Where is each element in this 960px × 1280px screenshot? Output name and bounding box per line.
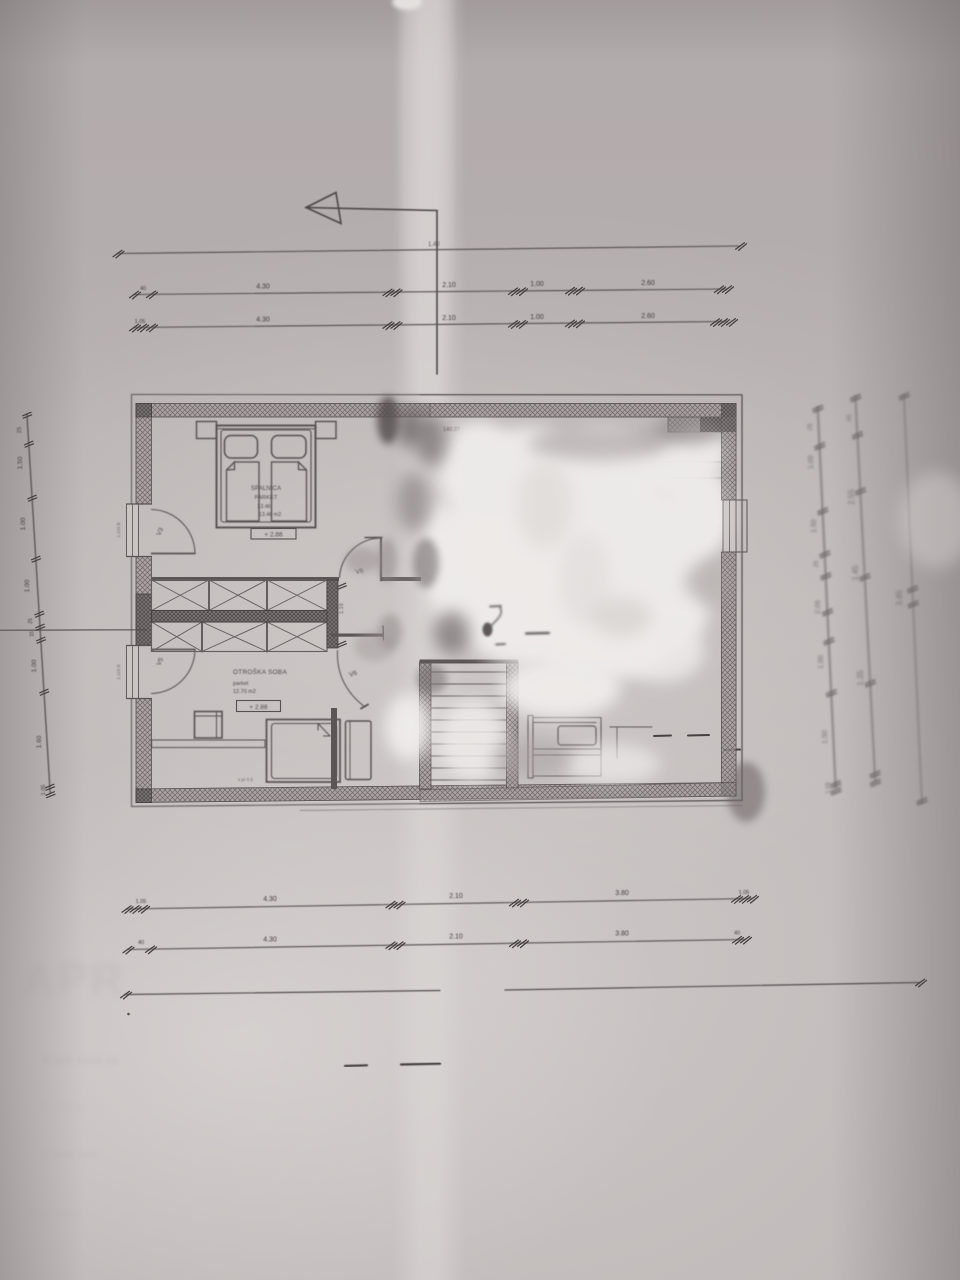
svg-text:13.46 m2: 13.46 m2 (259, 512, 281, 518)
svg-text:4.30: 4.30 (256, 317, 270, 324)
svg-text:2.10: 2.10 (449, 893, 463, 900)
svg-text:1.115 B: 1.115 B (116, 664, 121, 679)
svg-text:1.00: 1.00 (808, 455, 815, 469)
svg-text:APR: APR (22, 953, 125, 1005)
svg-text:2.60: 2.60 (641, 280, 655, 287)
svg-text:1.05: 1.05 (826, 782, 832, 794)
svg-text:V3: V3 (155, 526, 165, 537)
svg-text:1.05: 1.05 (136, 899, 147, 905)
svg-text:1.00: 1.00 (20, 517, 27, 530)
svg-text:1.45: 1.45 (851, 565, 860, 581)
svg-text:+ 2.86: + 2.86 (249, 704, 268, 711)
svg-text:13.46: 13.46 (257, 504, 271, 510)
svg-text:1.50: 1.50 (811, 519, 818, 533)
svg-text:PARKET: PARKET (255, 495, 278, 501)
svg-text:1.40: 1.40 (428, 242, 440, 248)
svg-text:3.80: 3.80 (615, 890, 629, 897)
svg-text:25: 25 (28, 618, 34, 624)
svg-text:V6: V6 (348, 669, 358, 678)
svg-text:15: 15 (30, 631, 36, 637)
svg-text:s pr 0.5: s pr 0.5 (238, 777, 254, 782)
svg-text:40: 40 (140, 286, 146, 292)
svg-text:2.10: 2.10 (442, 315, 456, 322)
svg-text:4 xxx xxxx xx: 4 xxx xxxx xx (42, 1052, 119, 1067)
svg-text:3.85: 3.85 (895, 590, 904, 606)
svg-text:x xxx xxxx: x xxx xxxx (28, 1207, 79, 1219)
svg-text:40: 40 (138, 940, 144, 946)
svg-text:4.30: 4.30 (263, 896, 277, 903)
svg-text:3.80: 3.80 (615, 931, 629, 938)
svg-text:25: 25 (17, 427, 23, 433)
svg-text:1.00: 1.00 (31, 659, 38, 672)
svg-text:1.05: 1.05 (739, 890, 750, 896)
svg-text:4.30: 4.30 (263, 937, 277, 944)
svg-text:1.35: 1.35 (856, 670, 865, 686)
svg-text:parket: parket (233, 681, 249, 687)
svg-text:2.10: 2.10 (449, 934, 463, 941)
svg-text:OTROŠKA SOBA: OTROŠKA SOBA (233, 667, 287, 676)
svg-text:1.50: 1.50 (17, 456, 24, 469)
svg-text:SPALNICA: SPALNICA (251, 485, 282, 492)
svg-text:1.00: 1.00 (24, 579, 31, 592)
svg-text:25: 25 (808, 423, 814, 430)
svg-text:1.00: 1.00 (530, 281, 544, 288)
svg-text:+ 2.86: + 2.86 (264, 532, 283, 539)
svg-text:x xxxx xx: x xxxx xx (42, 1101, 87, 1113)
svg-text:2.05: 2.05 (815, 600, 822, 614)
svg-text:1.50: 1.50 (822, 730, 829, 744)
svg-text:12.70 m2: 12.70 m2 (233, 689, 256, 695)
svg-text:40: 40 (734, 931, 740, 937)
svg-text:V5: V5 (155, 656, 165, 667)
svg-text:1.05: 1.05 (41, 785, 47, 796)
svg-text:4.30: 4.30 (256, 284, 270, 291)
svg-text:45: 45 (846, 414, 853, 422)
svg-text:1.60: 1.60 (36, 735, 43, 748)
svg-text:x xxxx xxx: x xxxx xxx (42, 1147, 97, 1161)
svg-text:2.60: 2.60 (641, 313, 655, 320)
svg-text:1.00: 1.00 (818, 655, 825, 669)
svg-text:1.19: 1.19 (339, 603, 345, 614)
svg-text:1.00: 1.00 (530, 314, 544, 321)
svg-text:1.115 B: 1.115 B (116, 522, 121, 537)
svg-text:2.55: 2.55 (847, 489, 856, 505)
svg-text:25: 25 (814, 560, 820, 567)
svg-text:1.05: 1.05 (135, 319, 146, 325)
svg-text:2.10: 2.10 (442, 282, 456, 289)
